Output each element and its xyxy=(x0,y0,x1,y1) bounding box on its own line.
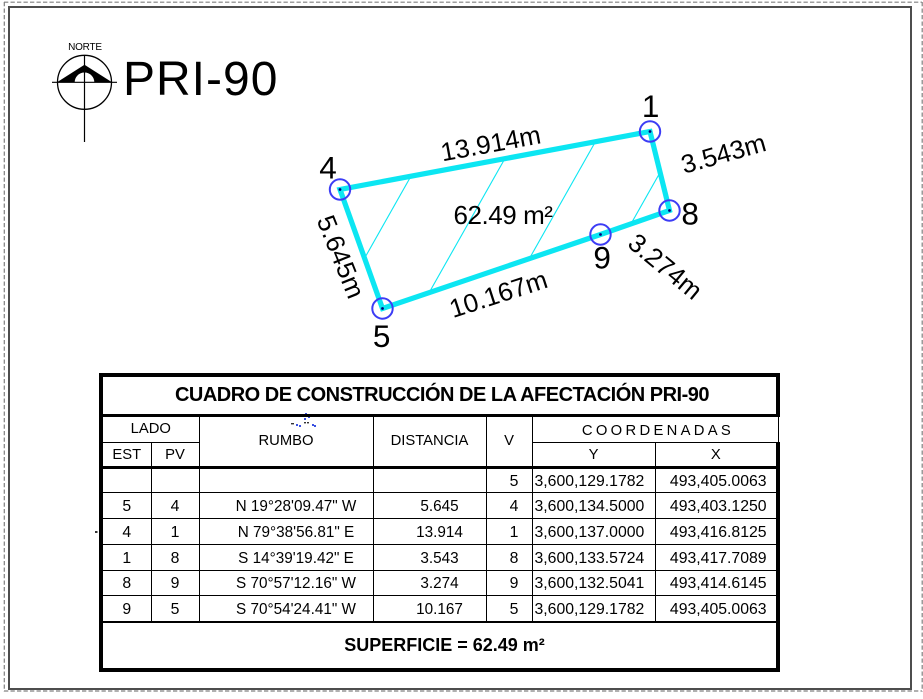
svg-text:3.274m: 3.274m xyxy=(622,227,708,305)
svg-text:5: 5 xyxy=(373,318,391,354)
svg-text:4: 4 xyxy=(319,150,337,186)
svg-text:3.543m: 3.543m xyxy=(678,127,770,179)
svg-text:62.49 m²: 62.49 m² xyxy=(453,200,553,230)
svg-text:8: 8 xyxy=(681,195,699,231)
svg-text:1: 1 xyxy=(642,88,660,124)
svg-text:10.167m: 10.167m xyxy=(446,264,552,324)
svg-text:9: 9 xyxy=(593,239,611,275)
